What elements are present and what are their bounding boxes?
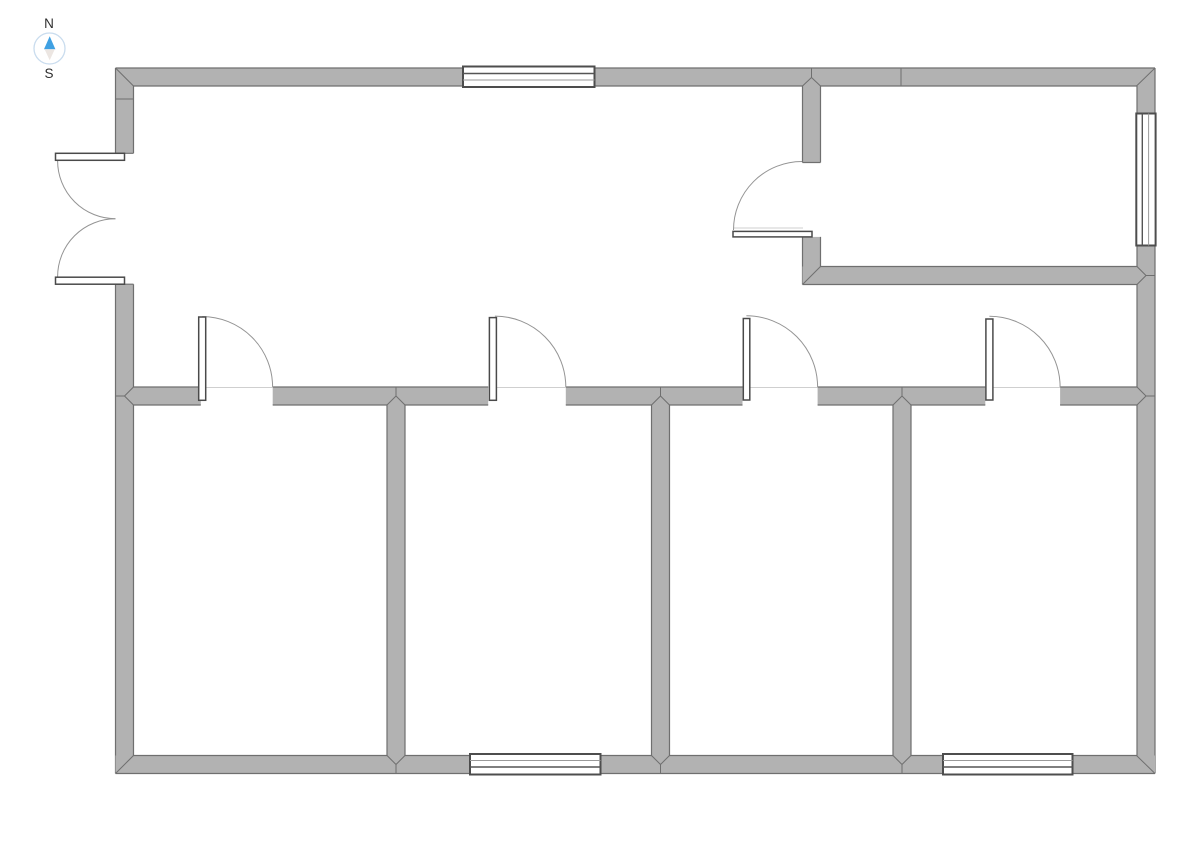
svg-text:S: S — [44, 66, 53, 81]
svg-text:N: N — [44, 16, 54, 31]
